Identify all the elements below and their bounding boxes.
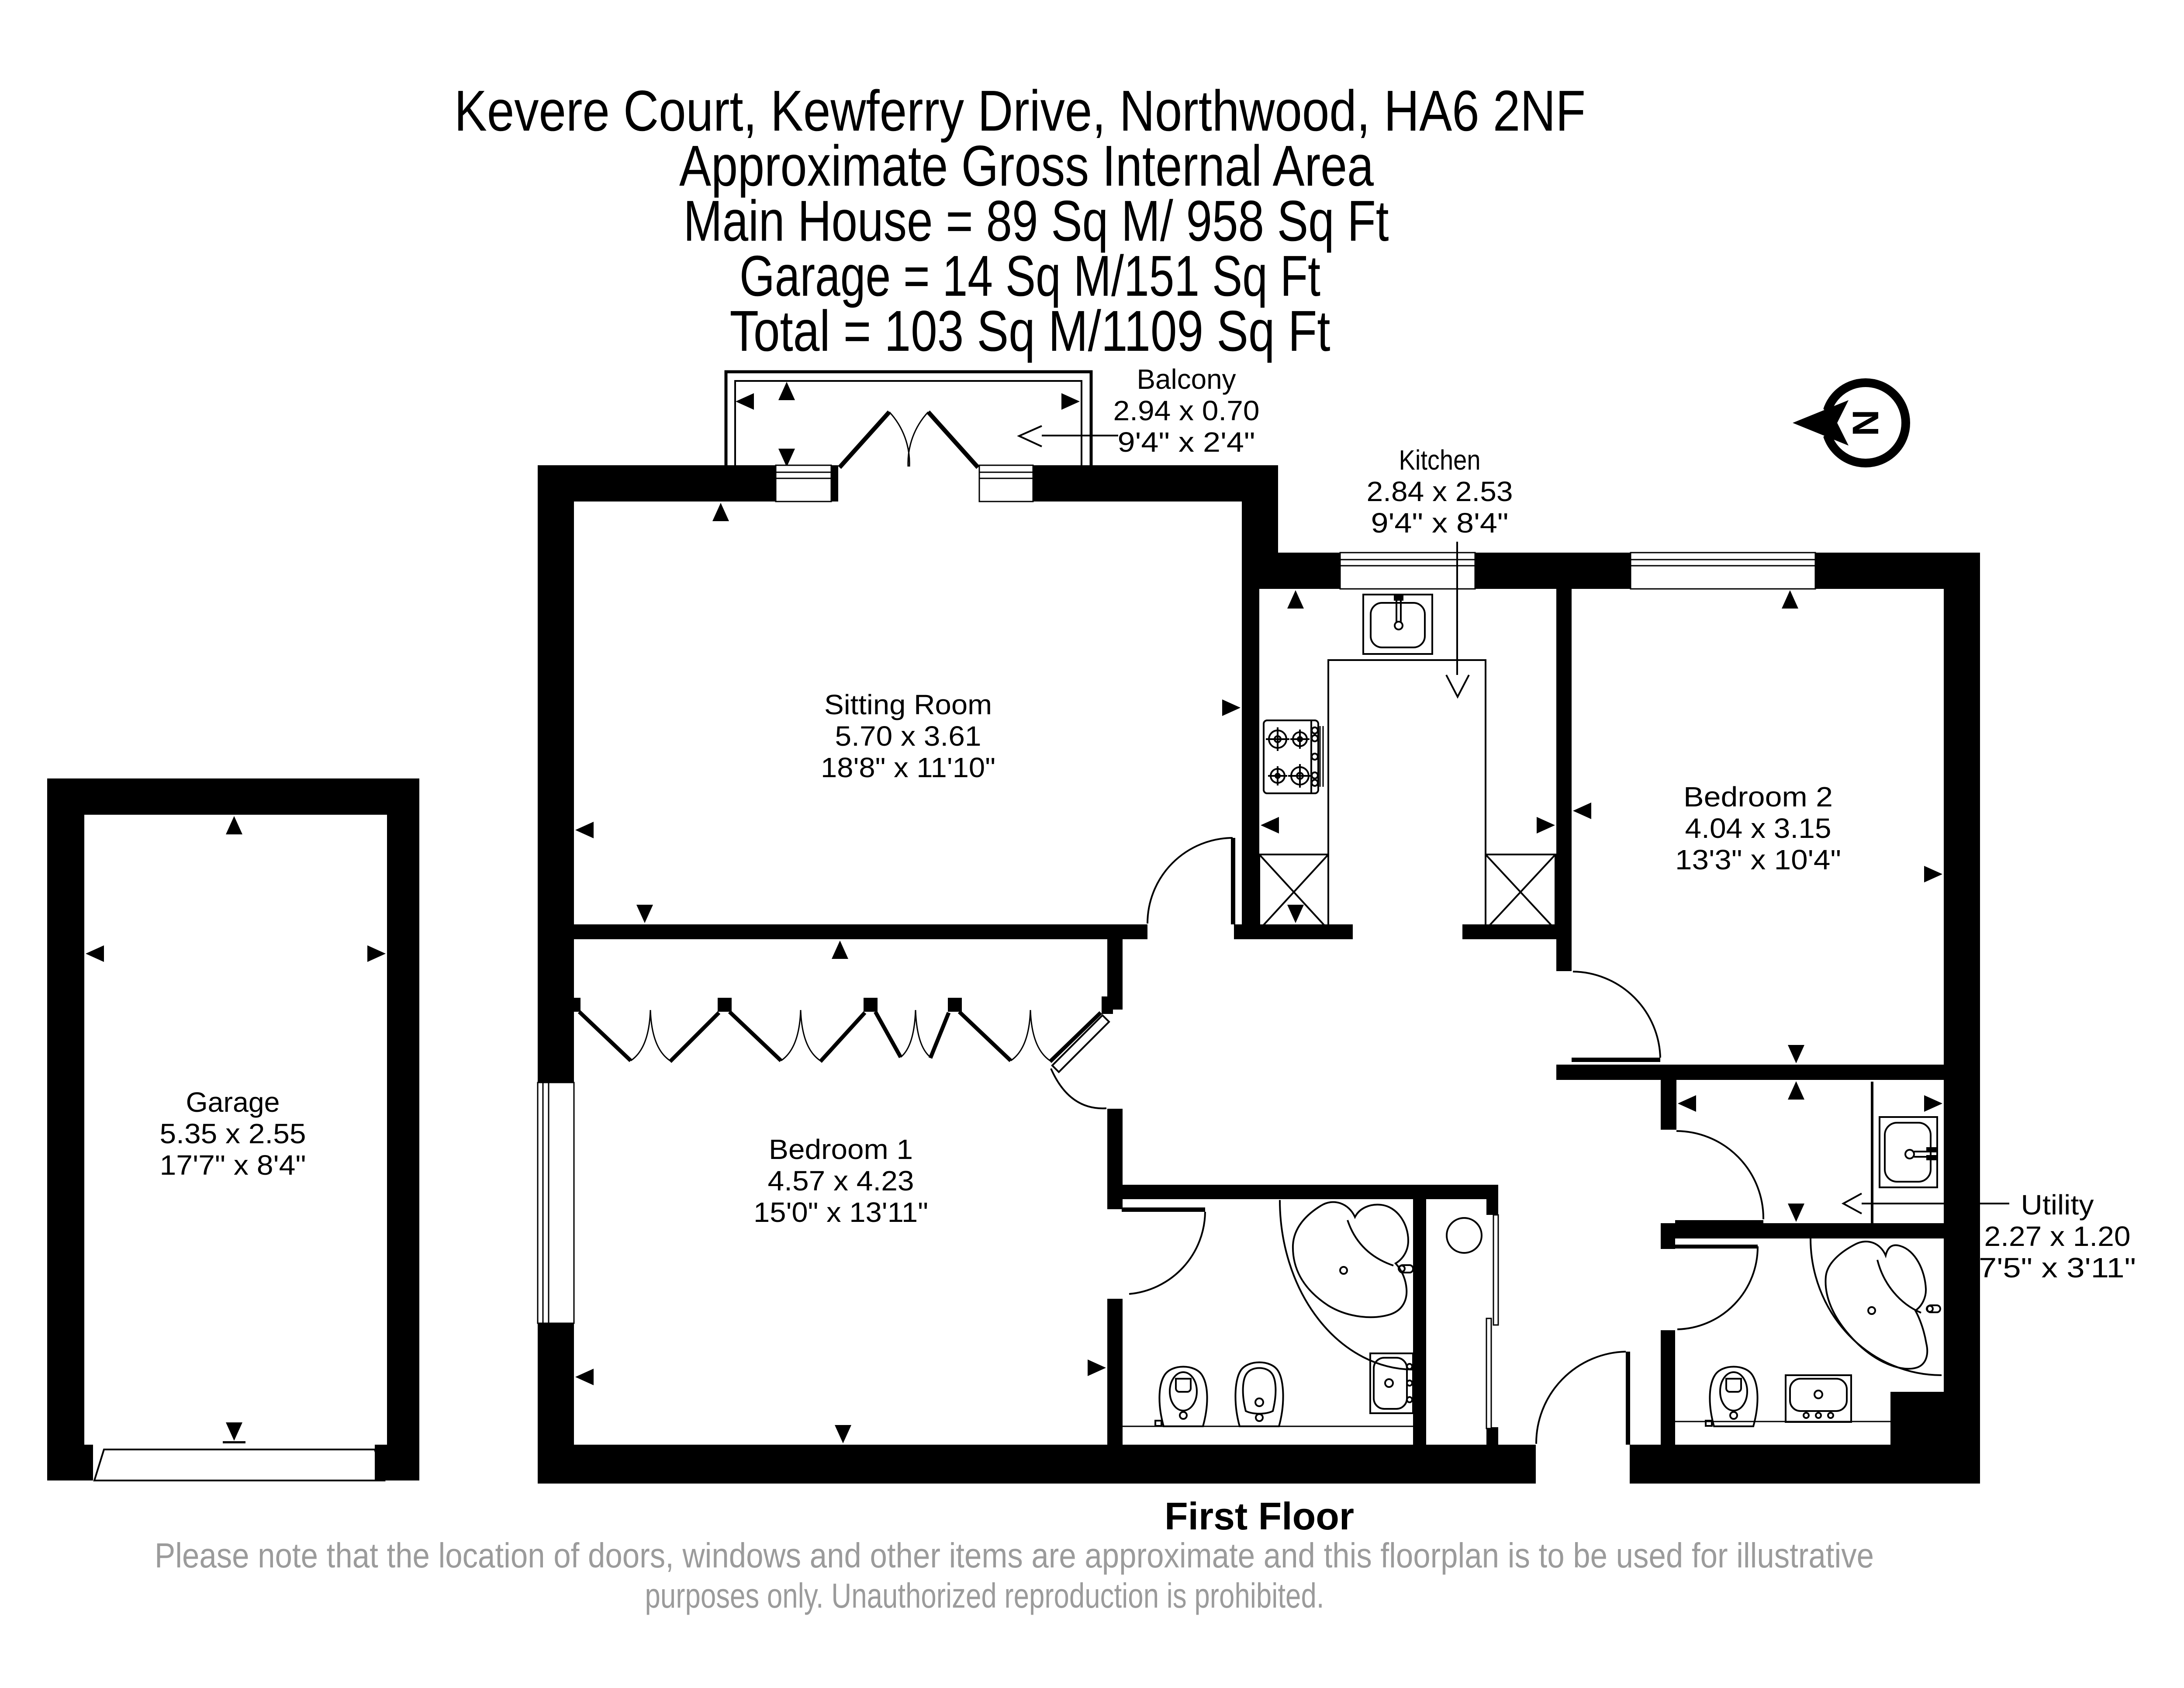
svg-text:Approximate Gross Internal Are: Approximate Gross Internal Area <box>679 134 1374 198</box>
svg-text:Utility: Utility <box>2021 1189 2094 1221</box>
svg-text:Kitchen: Kitchen <box>1399 444 1481 476</box>
svg-text:9'4" x 2'4": 9'4" x 2'4" <box>1118 426 1255 458</box>
svg-text:5.70 x 3.61: 5.70 x 3.61 <box>835 720 981 752</box>
svg-text:Bedroom 2: Bedroom 2 <box>1683 781 1833 813</box>
svg-text:17'7" x 8'4": 17'7" x 8'4" <box>160 1149 306 1181</box>
svg-text:7'5" x 3'11": 7'5" x 3'11" <box>1979 1252 2136 1283</box>
svg-text:Please note that the location: Please note that the location of doors, … <box>155 1536 1874 1575</box>
svg-text:Bedroom 1: Bedroom 1 <box>769 1134 913 1165</box>
svg-text:13'3" x 10'4": 13'3" x 10'4" <box>1675 844 1841 875</box>
svg-text:Garage: Garage <box>186 1086 280 1118</box>
svg-text:purposes only. Unauthorized re: purposes only. Unauthorized reproduction… <box>645 1576 1324 1615</box>
svg-text:4.04 x 3.15: 4.04 x 3.15 <box>1685 813 1832 844</box>
svg-text:5.35 x 2.55: 5.35 x 2.55 <box>160 1118 306 1149</box>
svg-text:9'4" x 8'4": 9'4" x 8'4" <box>1371 507 1509 539</box>
svg-text:N: N <box>1845 410 1886 436</box>
svg-text:2.27 x 1.20: 2.27 x 1.20 <box>1984 1221 2131 1252</box>
svg-text:2.84 x 2.53: 2.84 x 2.53 <box>1367 476 1513 507</box>
svg-text:Total = 103 Sq M/1109 Sq Ft: Total = 103 Sq M/1109 Sq Ft <box>730 299 1330 363</box>
svg-text:Garage = 14 Sq M/151 Sq Ft: Garage = 14 Sq M/151 Sq Ft <box>740 244 1320 308</box>
svg-text:2.94 x 0.70: 2.94 x 0.70 <box>1113 395 1260 426</box>
svg-text:Sitting Room: Sitting Room <box>824 689 992 720</box>
svg-text:Main House = 89 Sq M/ 958 Sq F: Main House = 89 Sq M/ 958 Sq Ft <box>684 189 1389 253</box>
svg-text:4.57 x 4.23: 4.57 x 4.23 <box>768 1165 914 1197</box>
svg-text:Kevere Court, Kewferry Drive,: Kevere Court, Kewferry Drive, Northwood,… <box>454 79 1586 143</box>
svg-text:18'8" x 11'10": 18'8" x 11'10" <box>821 752 995 783</box>
svg-text:First Floor: First Floor <box>1165 1494 1354 1538</box>
svg-text:Balcony: Balcony <box>1137 363 1236 395</box>
svg-text:15'0" x 13'11": 15'0" x 13'11" <box>753 1197 928 1228</box>
